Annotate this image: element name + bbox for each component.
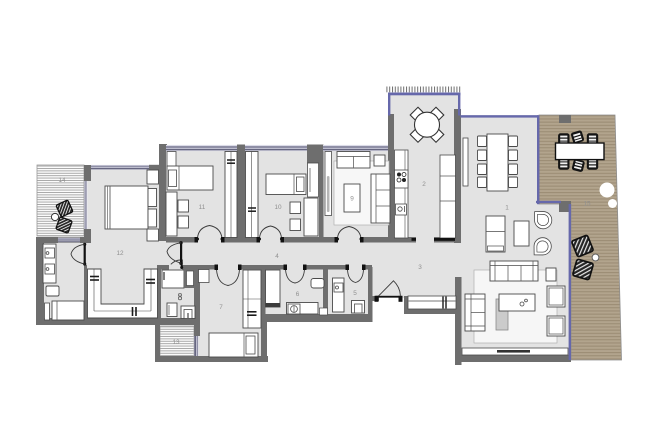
svg-text:1: 1 bbox=[505, 205, 509, 212]
svg-text:8: 8 bbox=[178, 293, 182, 300]
svg-text:11: 11 bbox=[199, 204, 206, 211]
svg-text:13: 13 bbox=[172, 339, 180, 346]
svg-text:10: 10 bbox=[274, 204, 282, 211]
svg-text:9: 9 bbox=[350, 196, 354, 203]
svg-text:6: 6 bbox=[296, 291, 300, 298]
svg-text:3: 3 bbox=[418, 264, 422, 271]
svg-text:12: 12 bbox=[116, 250, 124, 257]
svg-text:5: 5 bbox=[353, 290, 357, 297]
svg-text:14: 14 bbox=[58, 177, 66, 184]
svg-text:7: 7 bbox=[219, 304, 223, 311]
svg-text:15: 15 bbox=[583, 201, 591, 208]
svg-text:4: 4 bbox=[275, 253, 279, 260]
svg-text:2: 2 bbox=[422, 181, 426, 188]
